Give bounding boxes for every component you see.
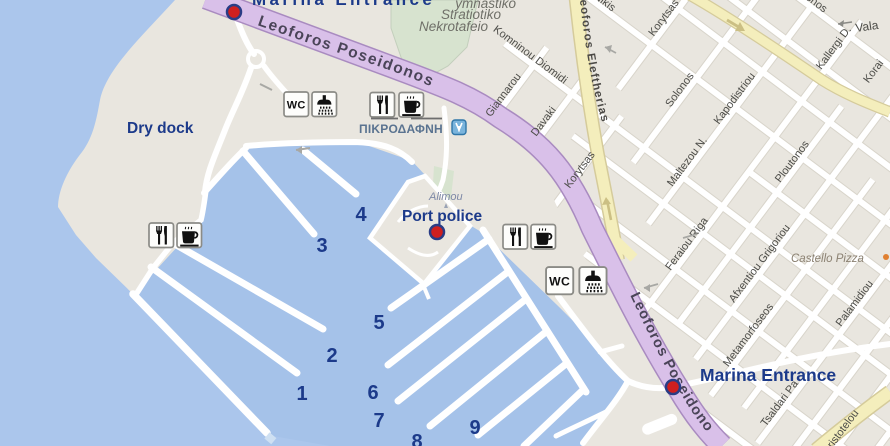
svg-text:Castello Pizza: Castello Pizza: [791, 253, 864, 265]
svg-text:7: 7: [373, 410, 384, 432]
svg-text:Alimou: Alimou: [428, 191, 463, 203]
svg-text:Port police: Port police: [402, 208, 482, 225]
svg-text:5: 5: [373, 312, 384, 334]
svg-text:Marina Entrance: Marina Entrance: [252, 0, 435, 9]
svg-text:ΠΙΚΡΟΔΑΦΝΗ: ΠΙΚΡΟΔΑΦΝΗ: [359, 122, 443, 136]
svg-text:1: 1: [296, 383, 307, 405]
svg-text:9: 9: [469, 417, 480, 439]
svg-text:3: 3: [316, 235, 327, 257]
svg-text:Dry dock: Dry dock: [127, 120, 194, 137]
svg-text:Marina Entrance: Marina Entrance: [700, 365, 836, 385]
svg-text:8: 8: [411, 431, 422, 446]
svg-text:WC: WC: [549, 274, 570, 288]
svg-text:WC: WC: [287, 100, 306, 112]
svg-text:2: 2: [326, 345, 337, 367]
svg-text:4: 4: [355, 204, 367, 226]
svg-text:Nekrotafeio: Nekrotafeio: [419, 19, 489, 34]
svg-text:6: 6: [367, 382, 378, 404]
